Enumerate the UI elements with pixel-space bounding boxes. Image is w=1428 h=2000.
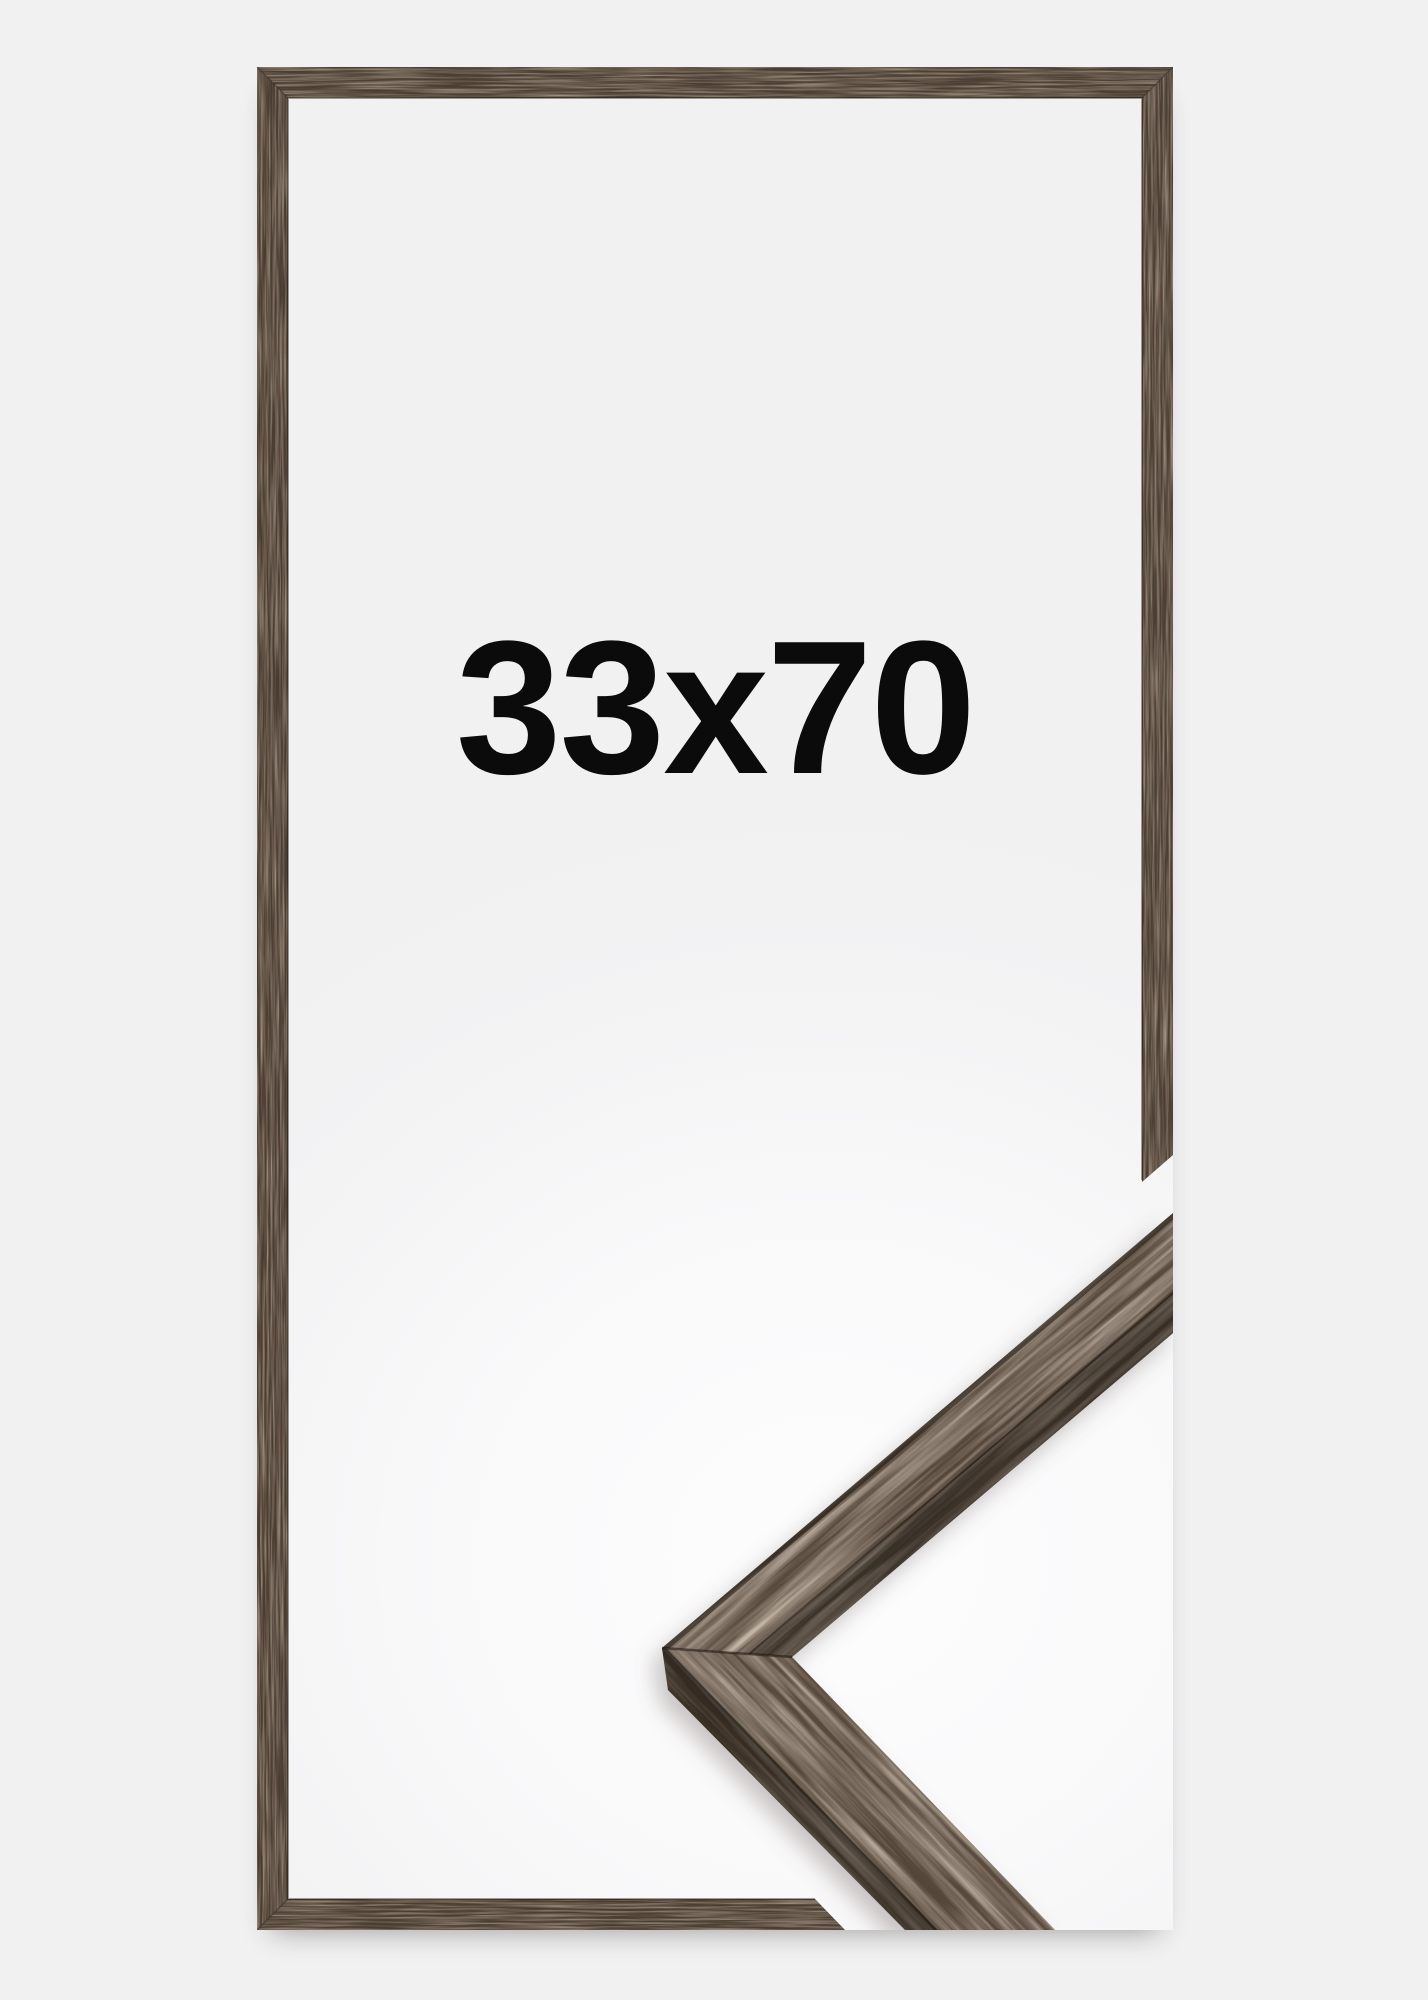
- frame-bar-left: [257, 67, 288, 1930]
- frame-corner-detail: [632, 1188, 1173, 1930]
- frame-product-photo: 33x70: [257, 67, 1173, 1930]
- frame-bar-top: [257, 67, 1173, 98]
- size-label: 33x70: [257, 613, 1173, 803]
- product-image-page: 33x70: [0, 0, 1428, 2000]
- frame-bar-bottom: [257, 1899, 845, 1930]
- frame-graphic: [257, 67, 1173, 1930]
